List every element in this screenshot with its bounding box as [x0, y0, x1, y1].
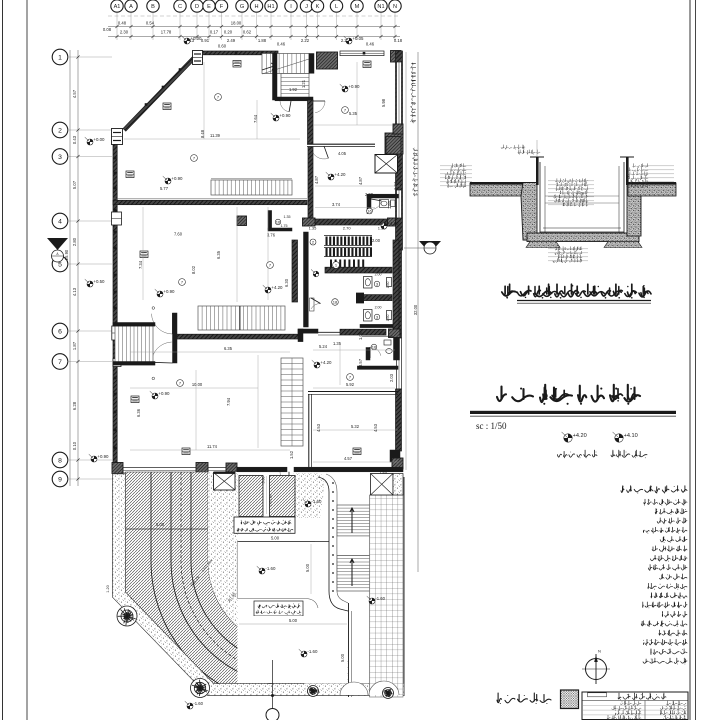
svg-text:4.87: 4.87 — [314, 175, 319, 184]
svg-text:+0.90: +0.90 — [279, 113, 291, 118]
svg-text:+4.10: +4.10 — [624, 433, 638, 439]
svg-text:0.62: 0.62 — [243, 30, 252, 35]
svg-text:-1.60: -1.60 — [311, 499, 322, 504]
svg-text:-1.60: -1.60 — [193, 701, 203, 706]
svg-text:7.94: 7.94 — [226, 397, 231, 406]
svg-text:5.00: 5.00 — [340, 653, 345, 662]
svg-text:1.92: 1.92 — [289, 87, 298, 92]
svg-text:6: 6 — [58, 328, 62, 335]
svg-text:5.00: 5.00 — [271, 536, 280, 541]
svg-text:+0.90: +0.90 — [163, 289, 175, 294]
svg-text:6.35: 6.35 — [216, 250, 221, 259]
svg-text:5: 5 — [58, 261, 62, 268]
svg-text:J: J — [305, 4, 308, 10]
svg-text:1.35: 1.35 — [284, 215, 291, 219]
svg-text:0.10: 0.10 — [72, 441, 77, 450]
svg-text:8.02: 8.02 — [191, 265, 196, 274]
svg-text:N: N — [598, 649, 601, 654]
svg-text:+0.90: +0.90 — [348, 84, 360, 89]
svg-text:1.87: 1.87 — [72, 341, 77, 350]
svg-text:18: 18 — [333, 300, 338, 305]
svg-text:4.13: 4.13 — [72, 287, 77, 296]
svg-text:5.98: 5.98 — [381, 98, 386, 107]
svg-text:4.57: 4.57 — [72, 89, 77, 98]
svg-text:0.46: 0.46 — [366, 42, 375, 47]
svg-text:H1: H1 — [267, 4, 274, 10]
svg-text:+4.20: +4.20 — [271, 285, 283, 290]
svg-text:+0.90: +0.90 — [158, 391, 170, 396]
svg-text:5.35: 5.35 — [349, 111, 358, 116]
svg-text:1.88: 1.88 — [258, 38, 267, 43]
svg-text:1.35: 1.35 — [309, 226, 318, 231]
svg-text:0.91: 0.91 — [201, 38, 210, 43]
svg-text:2.00: 2.00 — [365, 192, 374, 197]
svg-text:+0.50: +0.50 — [93, 279, 105, 284]
svg-text:9: 9 — [58, 476, 62, 483]
svg-text:4.53: 4.53 — [316, 423, 321, 432]
svg-text:4.05: 4.05 — [338, 151, 347, 156]
svg-text:L: L — [335, 4, 338, 10]
svg-text:A: A — [129, 4, 133, 10]
svg-text:2.30: 2.30 — [120, 30, 129, 35]
svg-text:1: 1 — [58, 54, 62, 61]
svg-text:5.92: 5.92 — [346, 382, 355, 387]
svg-text:0.54: 0.54 — [146, 21, 155, 26]
svg-text:0.08: 0.08 — [103, 27, 112, 32]
svg-text:1.35: 1.35 — [333, 341, 342, 346]
svg-text:17.78: 17.78 — [161, 30, 172, 35]
svg-text:11.39: 11.39 — [210, 133, 221, 138]
svg-text:E: E — [207, 4, 211, 10]
svg-text:0.48: 0.48 — [118, 21, 127, 26]
svg-text:3: 3 — [58, 154, 62, 161]
svg-text:6.30: 6.30 — [284, 278, 289, 287]
svg-text:8: 8 — [58, 457, 62, 464]
svg-text:0.60: 0.60 — [218, 44, 227, 49]
svg-text:1.20: 1.20 — [106, 585, 110, 592]
svg-text:5.77: 5.77 — [160, 186, 169, 191]
svg-text:4.87: 4.87 — [358, 176, 363, 185]
svg-text:+4.20: +4.20 — [387, 221, 399, 226]
svg-text:6.28: 6.28 — [72, 401, 77, 410]
svg-text:5.00: 5.00 — [289, 618, 298, 623]
svg-text:25.90: 25.90 — [64, 249, 69, 260]
svg-text:G: G — [240, 4, 244, 10]
svg-text:6.35: 6.35 — [224, 346, 233, 351]
svg-text:7.60: 7.60 — [174, 232, 183, 237]
svg-text:2.03: 2.03 — [389, 373, 394, 382]
svg-text:F: F — [220, 4, 224, 10]
svg-text:C: C — [178, 4, 182, 10]
svg-text:-1.60: -1.60 — [307, 649, 318, 654]
svg-text:0.43: 0.43 — [72, 135, 77, 144]
svg-text:1.21: 1.21 — [301, 79, 306, 88]
svg-text:2.00: 2.00 — [375, 306, 382, 310]
svg-text:7.64: 7.64 — [253, 114, 258, 123]
svg-text:2.80: 2.80 — [72, 237, 77, 246]
svg-text:5.00: 5.00 — [156, 522, 165, 527]
svg-text:18.00: 18.00 — [231, 21, 242, 26]
svg-text:2.70: 2.70 — [343, 226, 352, 231]
svg-text:2: 2 — [58, 127, 62, 134]
svg-text:1.52: 1.52 — [289, 450, 294, 459]
svg-text:5.00: 5.00 — [305, 563, 310, 572]
svg-text:+4.20: +4.20 — [320, 360, 332, 365]
svg-text:-1.60: -1.60 — [375, 596, 385, 601]
svg-text:1.34: 1.34 — [393, 181, 398, 190]
svg-text:16: 16 — [372, 345, 377, 350]
svg-text:1.75: 1.75 — [281, 224, 288, 228]
svg-text:5.07: 5.07 — [72, 180, 77, 189]
svg-text:0.18: 0.18 — [394, 38, 403, 43]
svg-text:32.00: 32.00 — [413, 304, 418, 315]
svg-text:4.57: 4.57 — [344, 456, 353, 461]
svg-text:sc : 1/50: sc : 1/50 — [476, 421, 507, 431]
svg-text:5.24: 5.24 — [319, 344, 328, 349]
svg-text:3.76: 3.76 — [267, 232, 276, 237]
svg-text:5.00: 5.00 — [262, 477, 266, 484]
svg-text:-1.60: -1.60 — [265, 566, 276, 571]
svg-text:5.32: 5.32 — [351, 424, 360, 429]
svg-text:10.00: 10.00 — [192, 382, 203, 387]
svg-text:3.57: 3.57 — [358, 358, 363, 367]
svg-text:+4.20: +4.20 — [334, 172, 346, 177]
svg-text:1.60: 1.60 — [386, 282, 390, 289]
svg-text:2.22: 2.22 — [301, 38, 310, 43]
svg-text:4.53: 4.53 — [373, 423, 378, 432]
svg-text:4: 4 — [58, 218, 62, 225]
svg-text:+0.90: +0.90 — [97, 454, 109, 459]
svg-text:2.00: 2.00 — [372, 238, 381, 243]
svg-text:2.00: 2.00 — [375, 273, 382, 277]
svg-text:M: M — [355, 4, 360, 10]
svg-text:+0.00: +0.00 — [93, 137, 105, 142]
svg-text:6.36: 6.36 — [136, 408, 141, 417]
svg-text:K: K — [316, 4, 320, 10]
svg-text:B: B — [151, 4, 155, 10]
svg-text:1.60: 1.60 — [387, 200, 392, 209]
svg-text:D: D — [195, 4, 199, 10]
svg-text:0.46: 0.46 — [277, 42, 286, 47]
svg-text:8.48: 8.48 — [200, 129, 205, 138]
svg-text:N1: N1 — [377, 4, 384, 10]
svg-text:1.60: 1.60 — [386, 315, 390, 322]
svg-text:+0.05: +0.05 — [352, 36, 364, 41]
svg-text:7: 7 — [58, 359, 62, 366]
svg-text:2.49: 2.49 — [227, 38, 236, 43]
svg-text:11.74: 11.74 — [207, 444, 218, 449]
svg-text:0.17: 0.17 — [210, 30, 219, 35]
svg-text:16: 16 — [367, 209, 372, 214]
svg-text:+4.20: +4.20 — [573, 433, 587, 439]
svg-text:3.74: 3.74 — [332, 202, 341, 207]
svg-text:N: N — [393, 4, 397, 10]
svg-text:H: H — [254, 4, 258, 10]
svg-text:1.06: 1.06 — [358, 331, 363, 340]
svg-text:7.34: 7.34 — [138, 260, 143, 269]
svg-text:L=5.18m: L=5.18m — [269, 494, 273, 506]
svg-text:0.20: 0.20 — [224, 30, 233, 35]
svg-text:A1: A1 — [114, 4, 121, 10]
svg-text:+0.90: +0.90 — [171, 176, 183, 181]
svg-text:+0.00: +0.00 — [190, 36, 202, 41]
